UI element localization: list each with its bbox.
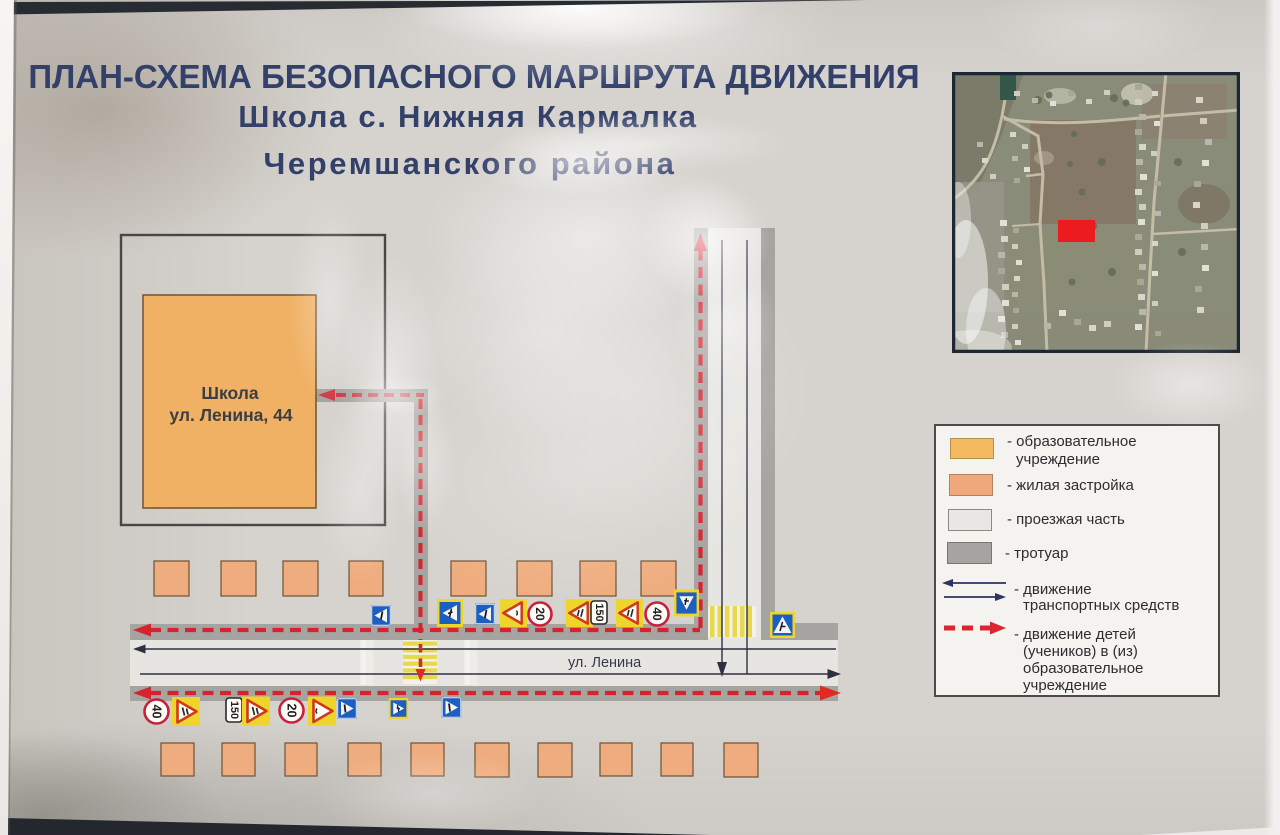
svg-text:150: 150 xyxy=(228,701,240,719)
svg-text:Школа: Школа xyxy=(201,383,258,403)
svg-text:ул. Ленина: ул. Ленина xyxy=(568,655,642,671)
svg-text:ул. Ленина, 44: ул. Ленина, 44 xyxy=(169,405,292,425)
svg-text:40: 40 xyxy=(650,607,664,621)
svg-text:150: 150 xyxy=(593,603,605,621)
svg-text:40: 40 xyxy=(150,705,164,719)
svg-text:20: 20 xyxy=(533,607,547,621)
svg-text:20: 20 xyxy=(285,704,299,718)
